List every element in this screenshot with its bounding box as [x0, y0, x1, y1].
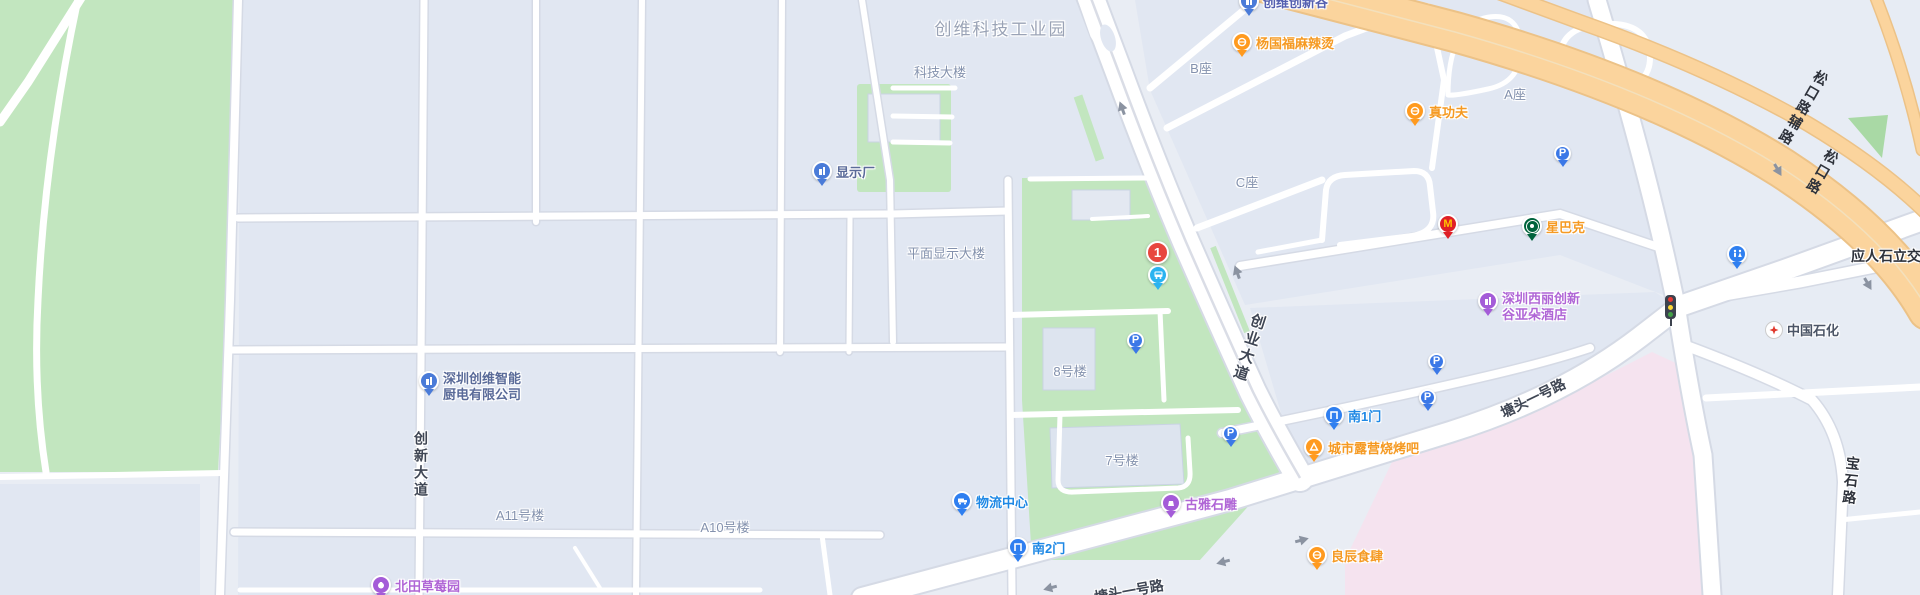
poi-south-gate-2[interactable]: 南2门 — [1008, 537, 1065, 557]
restaurant-pin-icon — [1307, 545, 1327, 565]
poi-mcdonalds[interactable]: M — [1438, 214, 1458, 234]
building-pin-icon — [1239, 0, 1259, 11]
bus-station-pin-icon — [1148, 265, 1168, 285]
poi-logistics-center[interactable]: 物流中心 — [952, 491, 1028, 511]
label-building-8: 8号楼 — [1053, 361, 1086, 380]
parking-pin[interactable]: P — [1554, 145, 1571, 162]
label-building-7: 7号楼 — [1105, 450, 1138, 469]
hotel-pin-icon — [1478, 291, 1498, 311]
restaurant-pin-icon — [1232, 32, 1252, 52]
label-tech-building: 科技大楼 — [914, 62, 966, 81]
stone-pin-icon — [1161, 493, 1181, 513]
restroom-icon — [1727, 244, 1747, 264]
label-yingrenshi-interchange: 应人石立交 — [1851, 246, 1920, 266]
poi-restroom[interactable] — [1727, 244, 1747, 264]
marker-number-badge: 1 — [1146, 241, 1169, 264]
parking-pin[interactable]: P — [1419, 389, 1436, 406]
traffic-light-icon — [1665, 295, 1676, 319]
poi-sinopec[interactable]: 中国石化 — [1765, 320, 1839, 339]
poi-beitian-strawberry[interactable]: 北田草莓园 — [371, 575, 460, 595]
map-viewport[interactable]: 创维科技工业园 科技大楼 B座 C座 A座 平面显示大楼 8号楼 7号楼 A11… — [0, 0, 1920, 595]
route-stop-marker-1[interactable]: 1 — [1146, 241, 1169, 264]
label-chuangxin-avenue: 创新大道 — [411, 431, 431, 499]
poi-zhen-gongfu[interactable]: 真功夫 — [1405, 101, 1468, 121]
truck-pin-icon — [952, 491, 972, 511]
label-industrial-park: 创维科技工业园 — [935, 15, 1068, 40]
sinopec-logo-icon — [1765, 321, 1783, 339]
mcdonalds-pin-icon: M — [1438, 214, 1458, 234]
poi-city-camping-bbq[interactable]: 城市露营烧烤吧 — [1304, 437, 1419, 457]
starbucks-pin-icon — [1522, 216, 1542, 236]
label-building-a10: A10号楼 — [700, 517, 749, 536]
parking-pin[interactable]: P — [1127, 332, 1144, 349]
strawberry-pin-icon — [371, 575, 391, 595]
building-pin-icon — [812, 161, 832, 181]
label-block-c: C座 — [1236, 172, 1258, 191]
poi-guya-stone-carving[interactable]: 古雅石雕 — [1161, 493, 1237, 513]
parking-pin[interactable]: P — [1222, 425, 1239, 442]
poi-south-gate-1[interactable]: 南1门 — [1324, 405, 1381, 425]
poi-yangguofu-malatang[interactable]: 杨国福麻辣烫 — [1232, 32, 1334, 52]
building-pin-icon — [419, 371, 439, 391]
poi-skyworth-kitchen[interactable]: 深圳创维智能 厨电有限公司 — [419, 371, 535, 403]
bbq-pin-icon — [1304, 437, 1324, 457]
gate-pin-icon — [1008, 537, 1028, 557]
restaurant-pin-icon — [1405, 101, 1425, 121]
poi-liangchen-restaurant[interactable]: 良辰食肆 — [1307, 545, 1383, 565]
parking-pin[interactable]: P — [1428, 353, 1445, 370]
poi-innovation-valley[interactable]: 创维创新谷 — [1239, 0, 1328, 11]
poi-display-factory[interactable]: 显示厂 — [812, 161, 875, 181]
label-building-a11: A11号楼 — [496, 505, 544, 524]
poi-atour-hotel[interactable]: 深圳西丽创新 谷亚朵酒店 — [1478, 291, 1594, 323]
gate-pin-icon — [1324, 405, 1344, 425]
label-flat-display-building: 平面显示大楼 — [907, 243, 985, 262]
label-block-b: B座 — [1190, 58, 1212, 77]
label-block-a: A座 — [1504, 84, 1526, 103]
poi-starbucks[interactable]: 星巴克 — [1522, 216, 1585, 236]
